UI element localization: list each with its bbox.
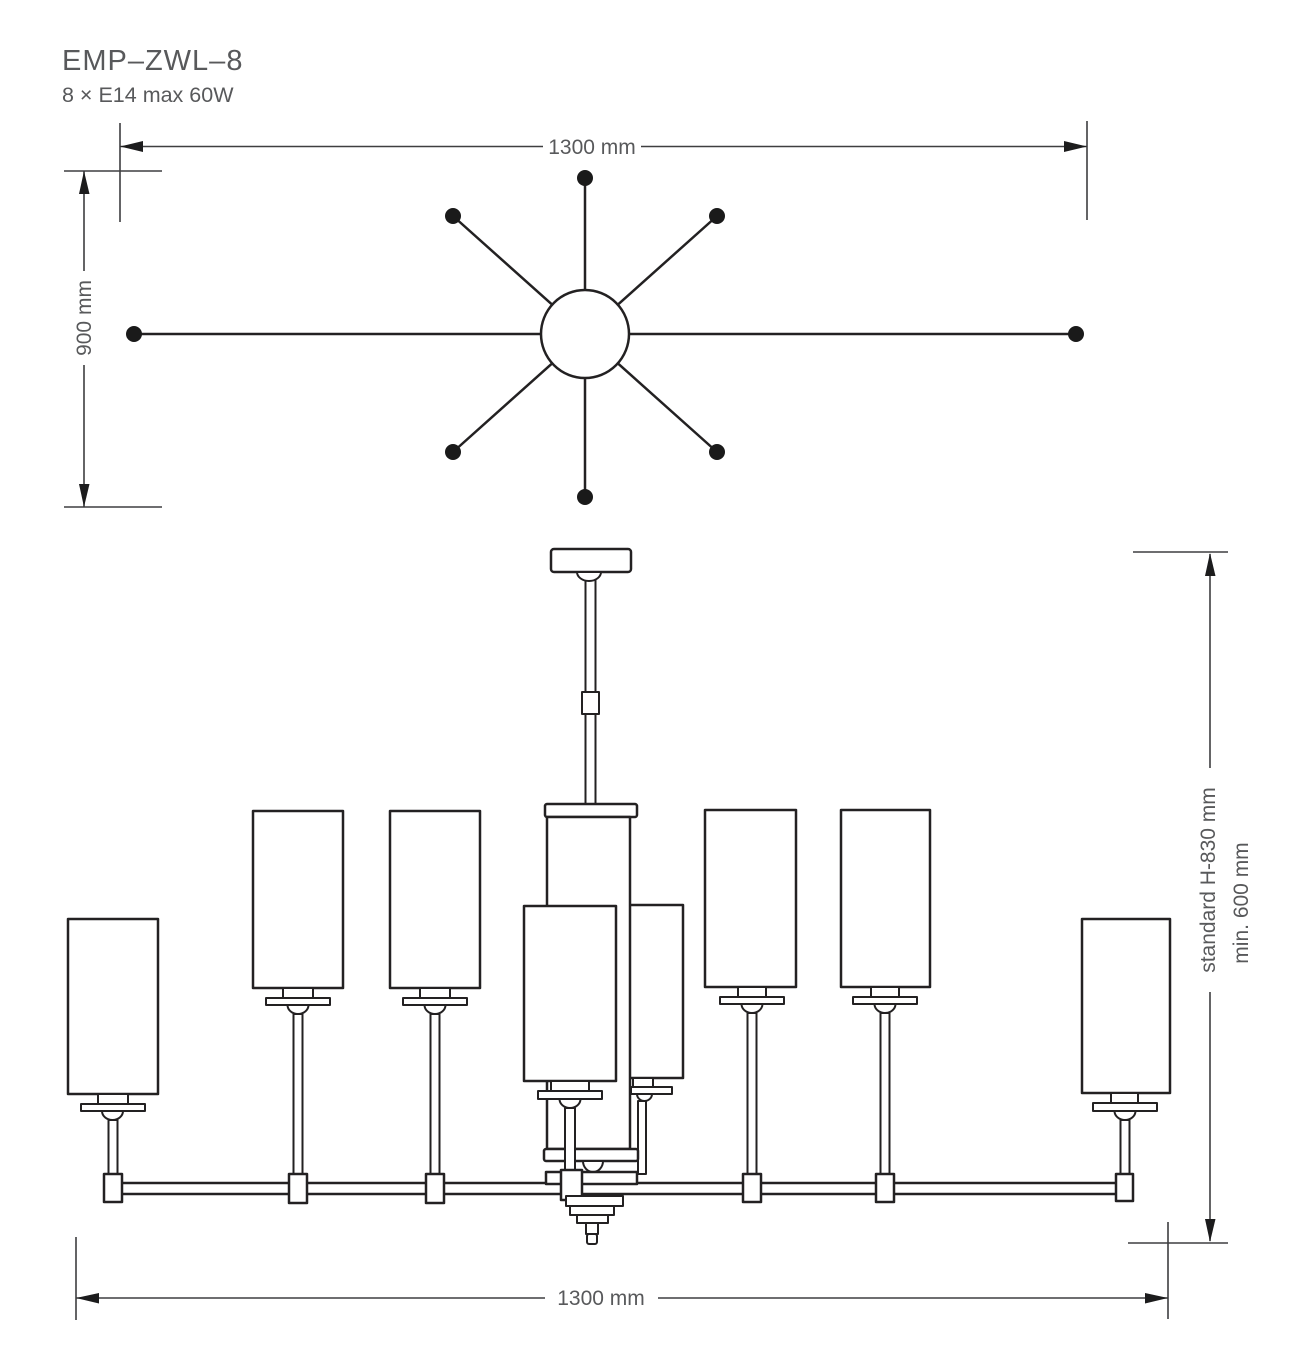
junction-block (289, 1174, 307, 1203)
shade-body (253, 811, 343, 988)
min-height-label: min. 600 mm (1230, 842, 1253, 963)
arrow-up-icon (1205, 553, 1216, 576)
candle-cup (1115, 1111, 1136, 1120)
drop-rod (748, 1013, 757, 1175)
finial-step-1 (566, 1196, 623, 1206)
shade-left-inner-1 (253, 811, 343, 1175)
arrow-left-icon (120, 141, 143, 152)
shade-body (1082, 919, 1170, 1093)
drop-rod (294, 1014, 303, 1175)
shade-neck (1111, 1093, 1138, 1103)
shade-neck (551, 1081, 589, 1091)
junction-block (104, 1174, 122, 1202)
center-hub (541, 290, 629, 378)
canopy-and-stem (551, 549, 631, 806)
candle-cup (875, 1004, 896, 1013)
side-view-width-dimension: 1300 mm (76, 1222, 1168, 1320)
shade-far-left (68, 919, 158, 1176)
finial-step-2 (570, 1206, 614, 1215)
bulb-dot (445, 444, 461, 460)
arrow-down-icon (1205, 1219, 1216, 1242)
bulb-dot (445, 208, 461, 224)
shade-neck (98, 1094, 128, 1104)
arrow-up-icon (79, 171, 90, 194)
hub-plate (546, 1172, 637, 1184)
shade-right-inner-2 (841, 810, 930, 1175)
junction-block (743, 1174, 761, 1202)
bulb-dot (577, 489, 593, 505)
column-dome (583, 1161, 603, 1172)
candle-cup (560, 1099, 581, 1108)
candle-cup (637, 1094, 652, 1101)
drop-rod (565, 1108, 575, 1174)
canopy-dome (577, 572, 601, 581)
drop-rod (109, 1120, 118, 1176)
shade-right-inner-1 (705, 810, 796, 1175)
drop-rod (638, 1101, 646, 1174)
arrow-left-icon (76, 1293, 99, 1304)
shade-left-inner-2 (390, 811, 480, 1175)
shade-neck (420, 988, 450, 998)
candle-cup (288, 1005, 309, 1014)
bulb-dot (709, 208, 725, 224)
shade-body (390, 811, 480, 988)
column-top-cap (545, 804, 637, 817)
shade-body (705, 810, 796, 987)
holder-plate (853, 997, 917, 1004)
top-view-width-dimension: 1300 mm (120, 121, 1087, 222)
bulb-dot (126, 326, 142, 342)
shade-body (68, 919, 158, 1094)
holder-plate (538, 1091, 602, 1099)
arrow-down-icon (79, 484, 90, 507)
stem-rod-upper (586, 572, 596, 692)
bulb-dot (577, 170, 593, 186)
finial-tip (587, 1234, 597, 1244)
product-code: EMP–ZWL–8 (62, 45, 243, 77)
column-bottom-rim (544, 1149, 638, 1161)
shade-body (841, 810, 930, 987)
shade-neck (633, 1078, 653, 1087)
lamp-spec: 8 × E14 max 60W (62, 83, 234, 107)
side-view-elevation (68, 549, 1170, 1244)
candle-cup (102, 1111, 123, 1120)
candle-cup (742, 1004, 763, 1013)
shade-neck (871, 987, 899, 997)
bulb-dot (1068, 326, 1084, 342)
top-view-depth-dimension: 900 mm (64, 171, 162, 507)
arrow-right-icon (1145, 1293, 1168, 1304)
technical-drawing: EMP–ZWL–8 8 × E14 max 60W 1300 mm 900 mm (0, 0, 1300, 1368)
junction-block (426, 1174, 444, 1203)
junction-block (876, 1174, 894, 1202)
holder-plate (81, 1104, 145, 1111)
drop-rod (431, 1014, 440, 1175)
holder-plate (631, 1087, 672, 1094)
holder-plate (1093, 1103, 1157, 1111)
junction-block (1116, 1174, 1133, 1201)
top-depth-label: 900 mm (73, 280, 96, 356)
central-hub-finial (546, 1170, 637, 1244)
holder-plate (403, 998, 467, 1005)
finial-neck (586, 1223, 598, 1234)
shade-body (524, 906, 616, 1081)
shade-neck (738, 987, 766, 997)
bottom-width-label: 1300 mm (557, 1287, 645, 1310)
candle-cup (425, 1005, 446, 1014)
top-width-label: 1300 mm (548, 136, 636, 159)
standard-height-label: standard H-830 mm (1197, 787, 1220, 973)
finial-step-3 (577, 1215, 608, 1223)
ceiling-canopy (551, 549, 631, 572)
shade-neck (283, 988, 313, 998)
side-view-height-dimension: standard H-830 mm min. 600 mm (1128, 552, 1253, 1243)
drawing-canvas: EMP–ZWL–8 8 × E14 max 60W 1300 mm 900 mm (0, 0, 1300, 1368)
drop-rod (1121, 1120, 1130, 1175)
arrow-right-icon (1064, 141, 1087, 152)
drop-rod (881, 1013, 890, 1175)
header: EMP–ZWL–8 8 × E14 max 60W (62, 45, 243, 107)
bulb-dot (709, 444, 725, 460)
top-view-plan (126, 170, 1084, 505)
holder-plate (720, 997, 784, 1004)
stem-rod-lower (586, 714, 596, 806)
stem-connector (582, 692, 599, 714)
holder-plate (266, 998, 330, 1005)
shade-far-right (1082, 919, 1170, 1175)
